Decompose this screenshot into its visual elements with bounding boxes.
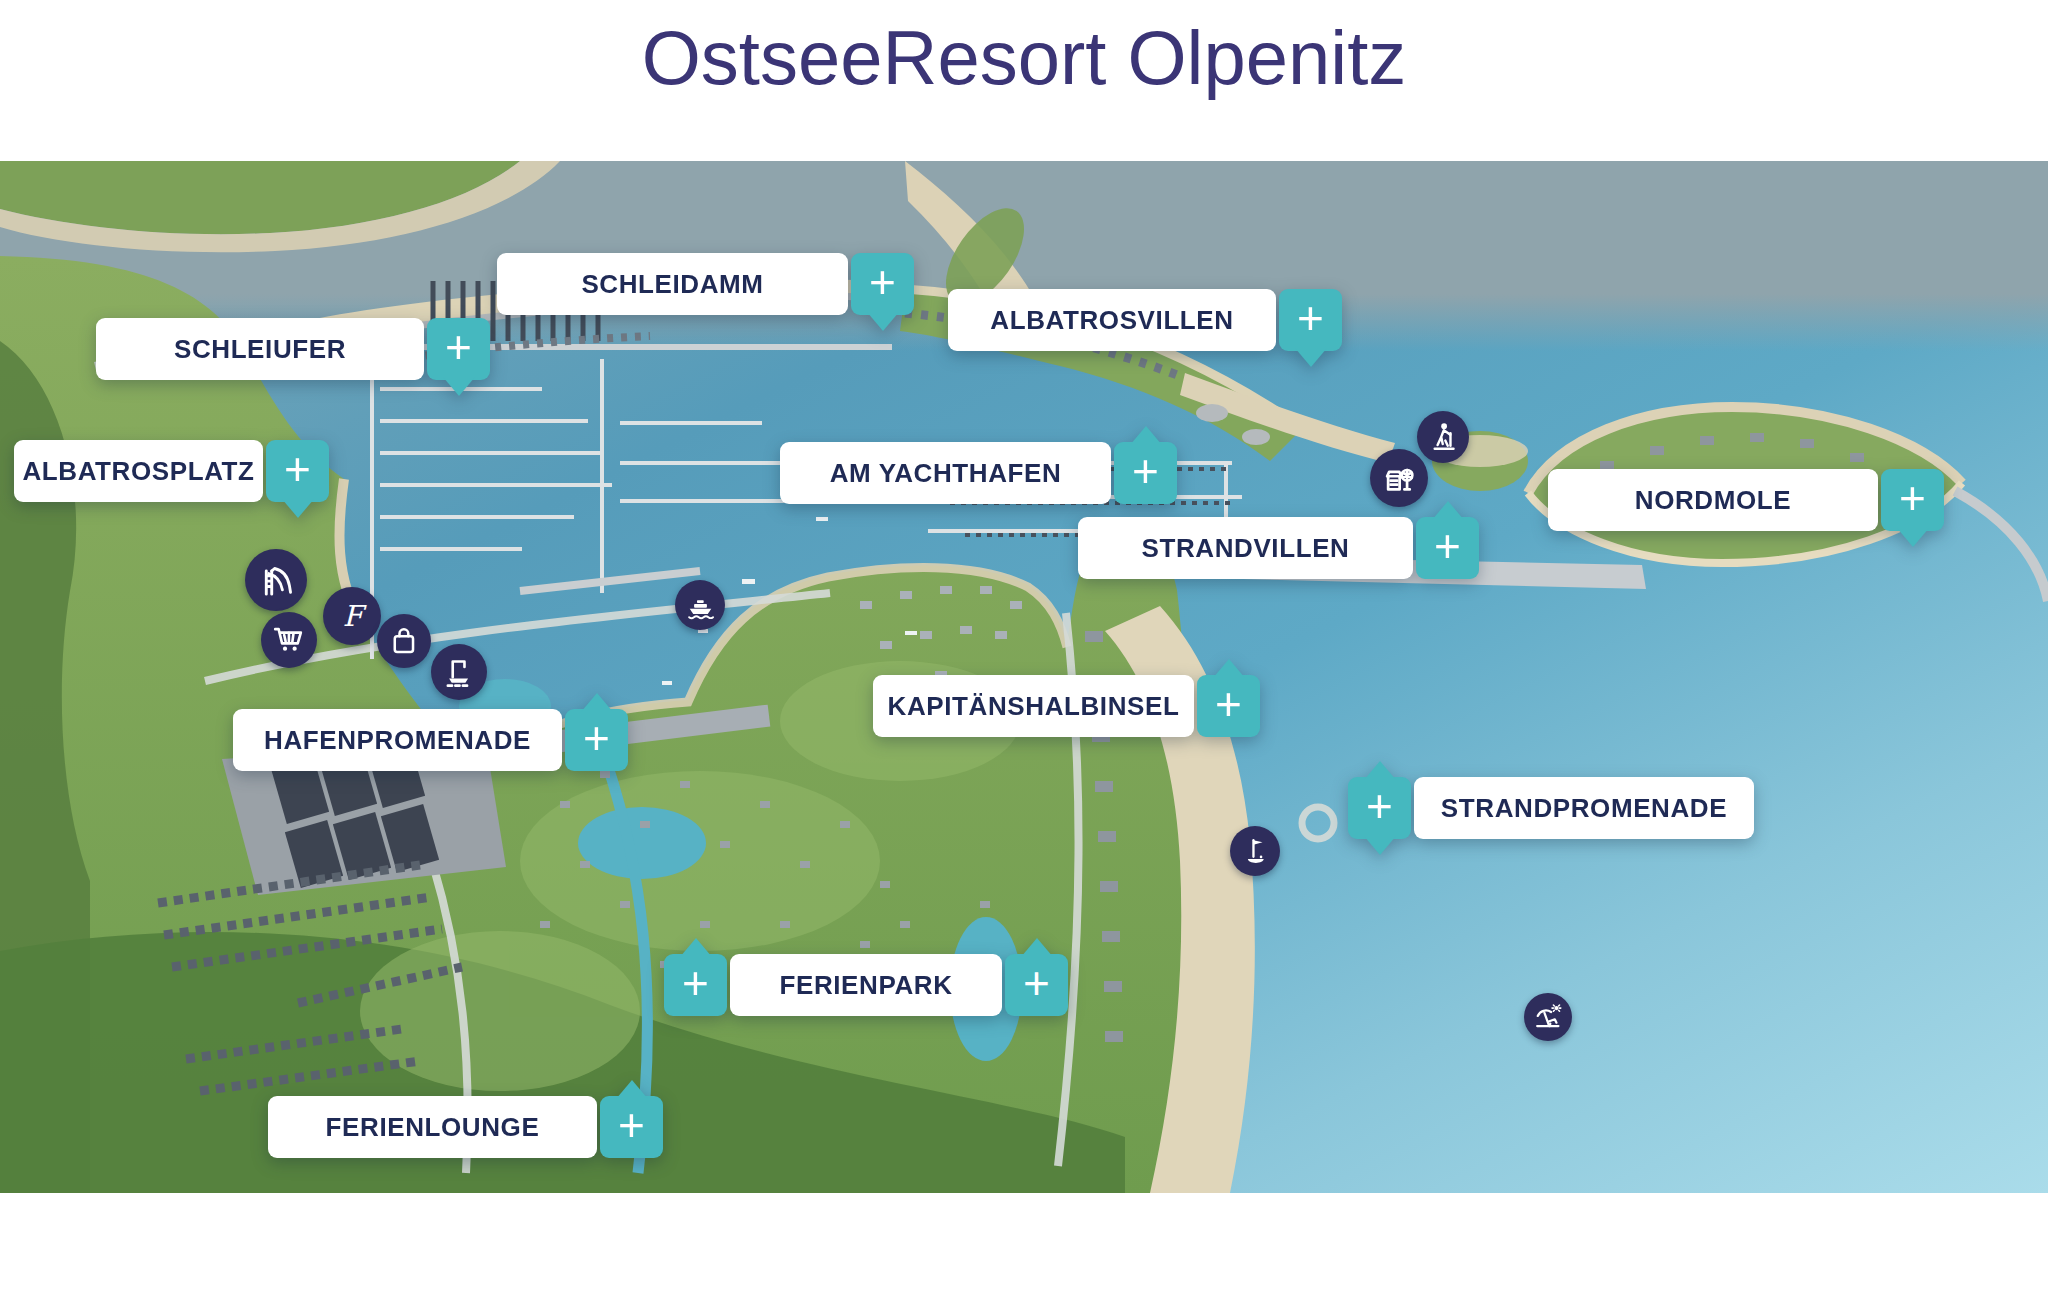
page: OstseeResort Olpenitz (0, 0, 2048, 1303)
plus-icon: + (1899, 475, 1926, 521)
area-marker-schleidamm: SCHLEIDAMM+ (497, 253, 914, 315)
plus-icon: + (618, 1102, 645, 1148)
plus-icon: + (1366, 783, 1393, 829)
area-label-ferienlounge[interactable]: FERIENLOUNGE (268, 1096, 597, 1158)
golf-icon[interactable] (1230, 826, 1280, 876)
hiker-icon[interactable] (1417, 411, 1469, 463)
plus-icon: + (869, 259, 896, 305)
area-marker-am-yachthafen: AM YACHTHAFEN+ (780, 442, 1177, 504)
area-plus-button-hafenpromenade[interactable]: + (565, 709, 628, 771)
area-plus-button-kapitaenshalbinsel[interactable]: + (1197, 675, 1260, 737)
shopping-cart-icon[interactable] (261, 612, 317, 668)
page-title: OstseeResort Olpenitz (0, 14, 2048, 101)
area-label-schleiufer[interactable]: SCHLEIUFER (96, 318, 424, 380)
area-marker-strandpromenade: +STRANDPROMENADE (1348, 777, 1754, 839)
area-plus-button-strandpromenade[interactable]: + (1348, 777, 1411, 839)
area-marker-ferienpark: +FERIENPARK+ (664, 954, 1068, 1016)
f-logo-icon[interactable]: F (323, 587, 381, 645)
plus-icon: + (1023, 960, 1050, 1006)
area-marker-hafenpromenade: HAFENPROMENADE+ (233, 709, 628, 771)
area-label-kapitaenshalbinsel[interactable]: KAPITÄNSHALBINSEL (873, 675, 1194, 737)
area-plus-button-ferienpark[interactable]: + (664, 954, 727, 1016)
area-plus-button-ferienpark[interactable]: + (1005, 954, 1068, 1016)
area-label-nordmole[interactable]: NORDMOLE (1548, 469, 1878, 531)
area-label-schleidamm[interactable]: SCHLEIDAMM (497, 253, 848, 315)
boat-lift-icon[interactable] (431, 644, 487, 700)
plus-icon: + (445, 324, 472, 370)
area-plus-button-schleiufer[interactable]: + (427, 318, 490, 380)
svg-text:F: F (343, 599, 367, 633)
plus-icon: + (1215, 681, 1242, 727)
area-plus-button-schleidamm[interactable]: + (851, 253, 914, 315)
area-label-albatrosvillen[interactable]: ALBATROSVILLEN (948, 289, 1276, 351)
area-marker-albatrosplatz: ALBATROSPLATZ+ (14, 440, 329, 502)
ferry-icon[interactable] (675, 580, 725, 630)
plus-icon: + (1297, 295, 1324, 341)
area-marker-nordmole: NORDMOLE+ (1548, 469, 1944, 531)
plus-icon: + (583, 715, 610, 761)
area-marker-albatrosvillen: ALBATROSVILLEN+ (948, 289, 1342, 351)
area-label-ferienpark[interactable]: FERIENPARK (730, 954, 1002, 1016)
area-label-albatrosplatz[interactable]: ALBATROSPLATZ (14, 440, 263, 502)
area-plus-button-am-yachthafen[interactable]: + (1114, 442, 1177, 504)
waterslide-icon[interactable] (245, 549, 307, 611)
plus-icon: + (1434, 523, 1461, 569)
area-label-strandpromenade[interactable]: STRANDPROMENADE (1414, 777, 1754, 839)
beach-icon[interactable] (1524, 993, 1572, 1041)
shopping-bag-icon[interactable] (377, 614, 431, 668)
area-marker-strandvillen: STRANDVILLEN+ (1078, 517, 1479, 579)
area-plus-button-nordmole[interactable]: + (1881, 469, 1944, 531)
area-label-strandvillen[interactable]: STRANDVILLEN (1078, 517, 1413, 579)
area-marker-schleiufer: SCHLEIUFER+ (96, 318, 490, 380)
area-plus-button-albatrosplatz[interactable]: + (266, 440, 329, 502)
area-marker-kapitaenshalbinsel: KAPITÄNSHALBINSEL+ (873, 675, 1260, 737)
area-plus-button-albatrosvillen[interactable]: + (1279, 289, 1342, 351)
area-marker-ferienlounge: FERIENLOUNGE+ (268, 1096, 663, 1158)
plus-icon: + (1132, 448, 1159, 494)
playground-icon[interactable] (1370, 449, 1428, 507)
area-plus-button-ferienlounge[interactable]: + (600, 1096, 663, 1158)
plus-icon: + (284, 446, 311, 492)
area-plus-button-strandvillen[interactable]: + (1416, 517, 1479, 579)
area-label-hafenpromenade[interactable]: HAFENPROMENADE (233, 709, 562, 771)
plus-icon: + (682, 960, 709, 1006)
area-label-am-yachthafen[interactable]: AM YACHTHAFEN (780, 442, 1111, 504)
